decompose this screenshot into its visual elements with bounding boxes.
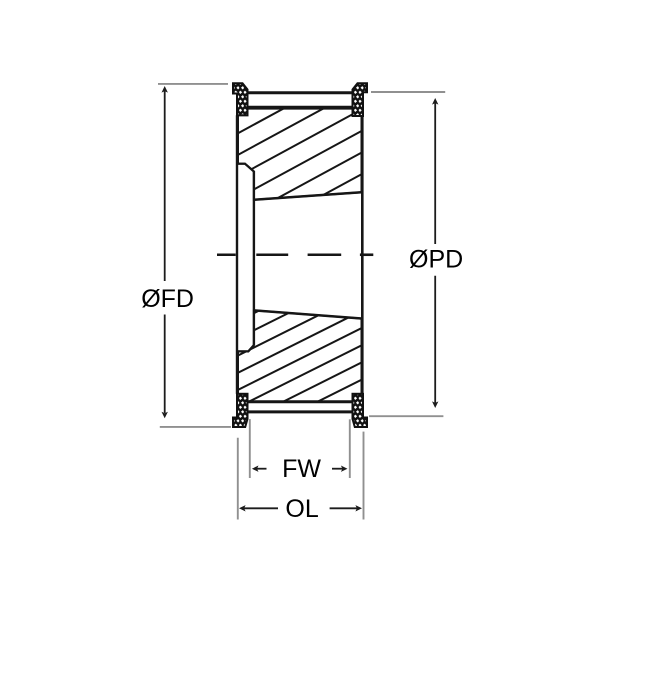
svg-text:OL: OL xyxy=(285,495,318,523)
svg-text:FW: FW xyxy=(282,455,321,483)
svg-text:ØPD: ØPD xyxy=(409,246,463,274)
svg-text:ØFD: ØFD xyxy=(141,285,194,313)
